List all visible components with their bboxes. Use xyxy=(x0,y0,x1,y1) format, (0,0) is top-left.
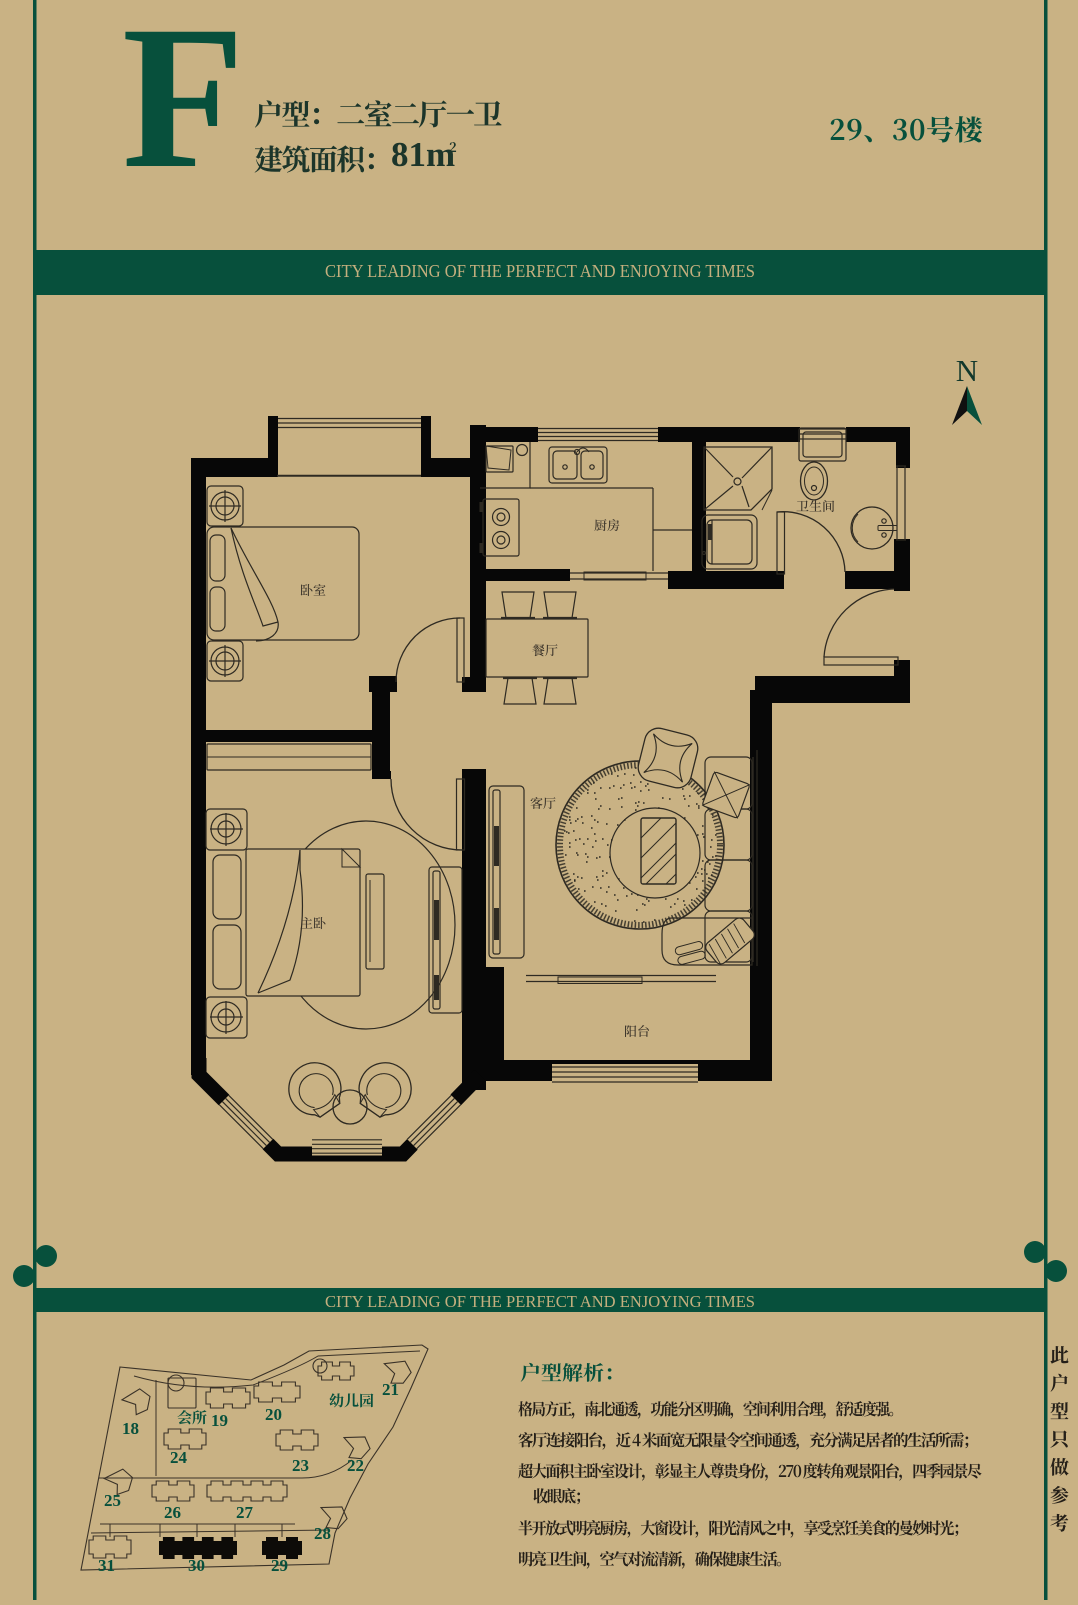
svg-text:81m: 81m xyxy=(391,135,455,174)
svg-text:18: 18 xyxy=(122,1419,139,1438)
svg-text:23: 23 xyxy=(292,1456,309,1475)
svg-text:30: 30 xyxy=(188,1556,205,1575)
svg-text:21: 21 xyxy=(382,1380,399,1399)
svg-text:CITY LEADING OF THE PERFECT AN: CITY LEADING OF THE PERFECT AND ENJOYING… xyxy=(325,1292,755,1311)
svg-text:N: N xyxy=(956,353,978,388)
svg-text:F: F xyxy=(122,0,245,210)
svg-text:31: 31 xyxy=(98,1556,115,1575)
svg-text:20: 20 xyxy=(265,1405,282,1424)
svg-text:25: 25 xyxy=(104,1491,121,1510)
svg-text:22: 22 xyxy=(347,1456,364,1475)
svg-text:28: 28 xyxy=(314,1524,331,1543)
svg-text:26: 26 xyxy=(164,1503,181,1522)
svg-text:19: 19 xyxy=(211,1411,228,1430)
svg-text:29: 29 xyxy=(271,1556,288,1575)
svg-text:27: 27 xyxy=(236,1503,254,1522)
svg-text:CITY LEADING OF THE PERFECT AN: CITY LEADING OF THE PERFECT AND ENJOYING… xyxy=(325,261,755,281)
svg-text:24: 24 xyxy=(170,1448,188,1467)
